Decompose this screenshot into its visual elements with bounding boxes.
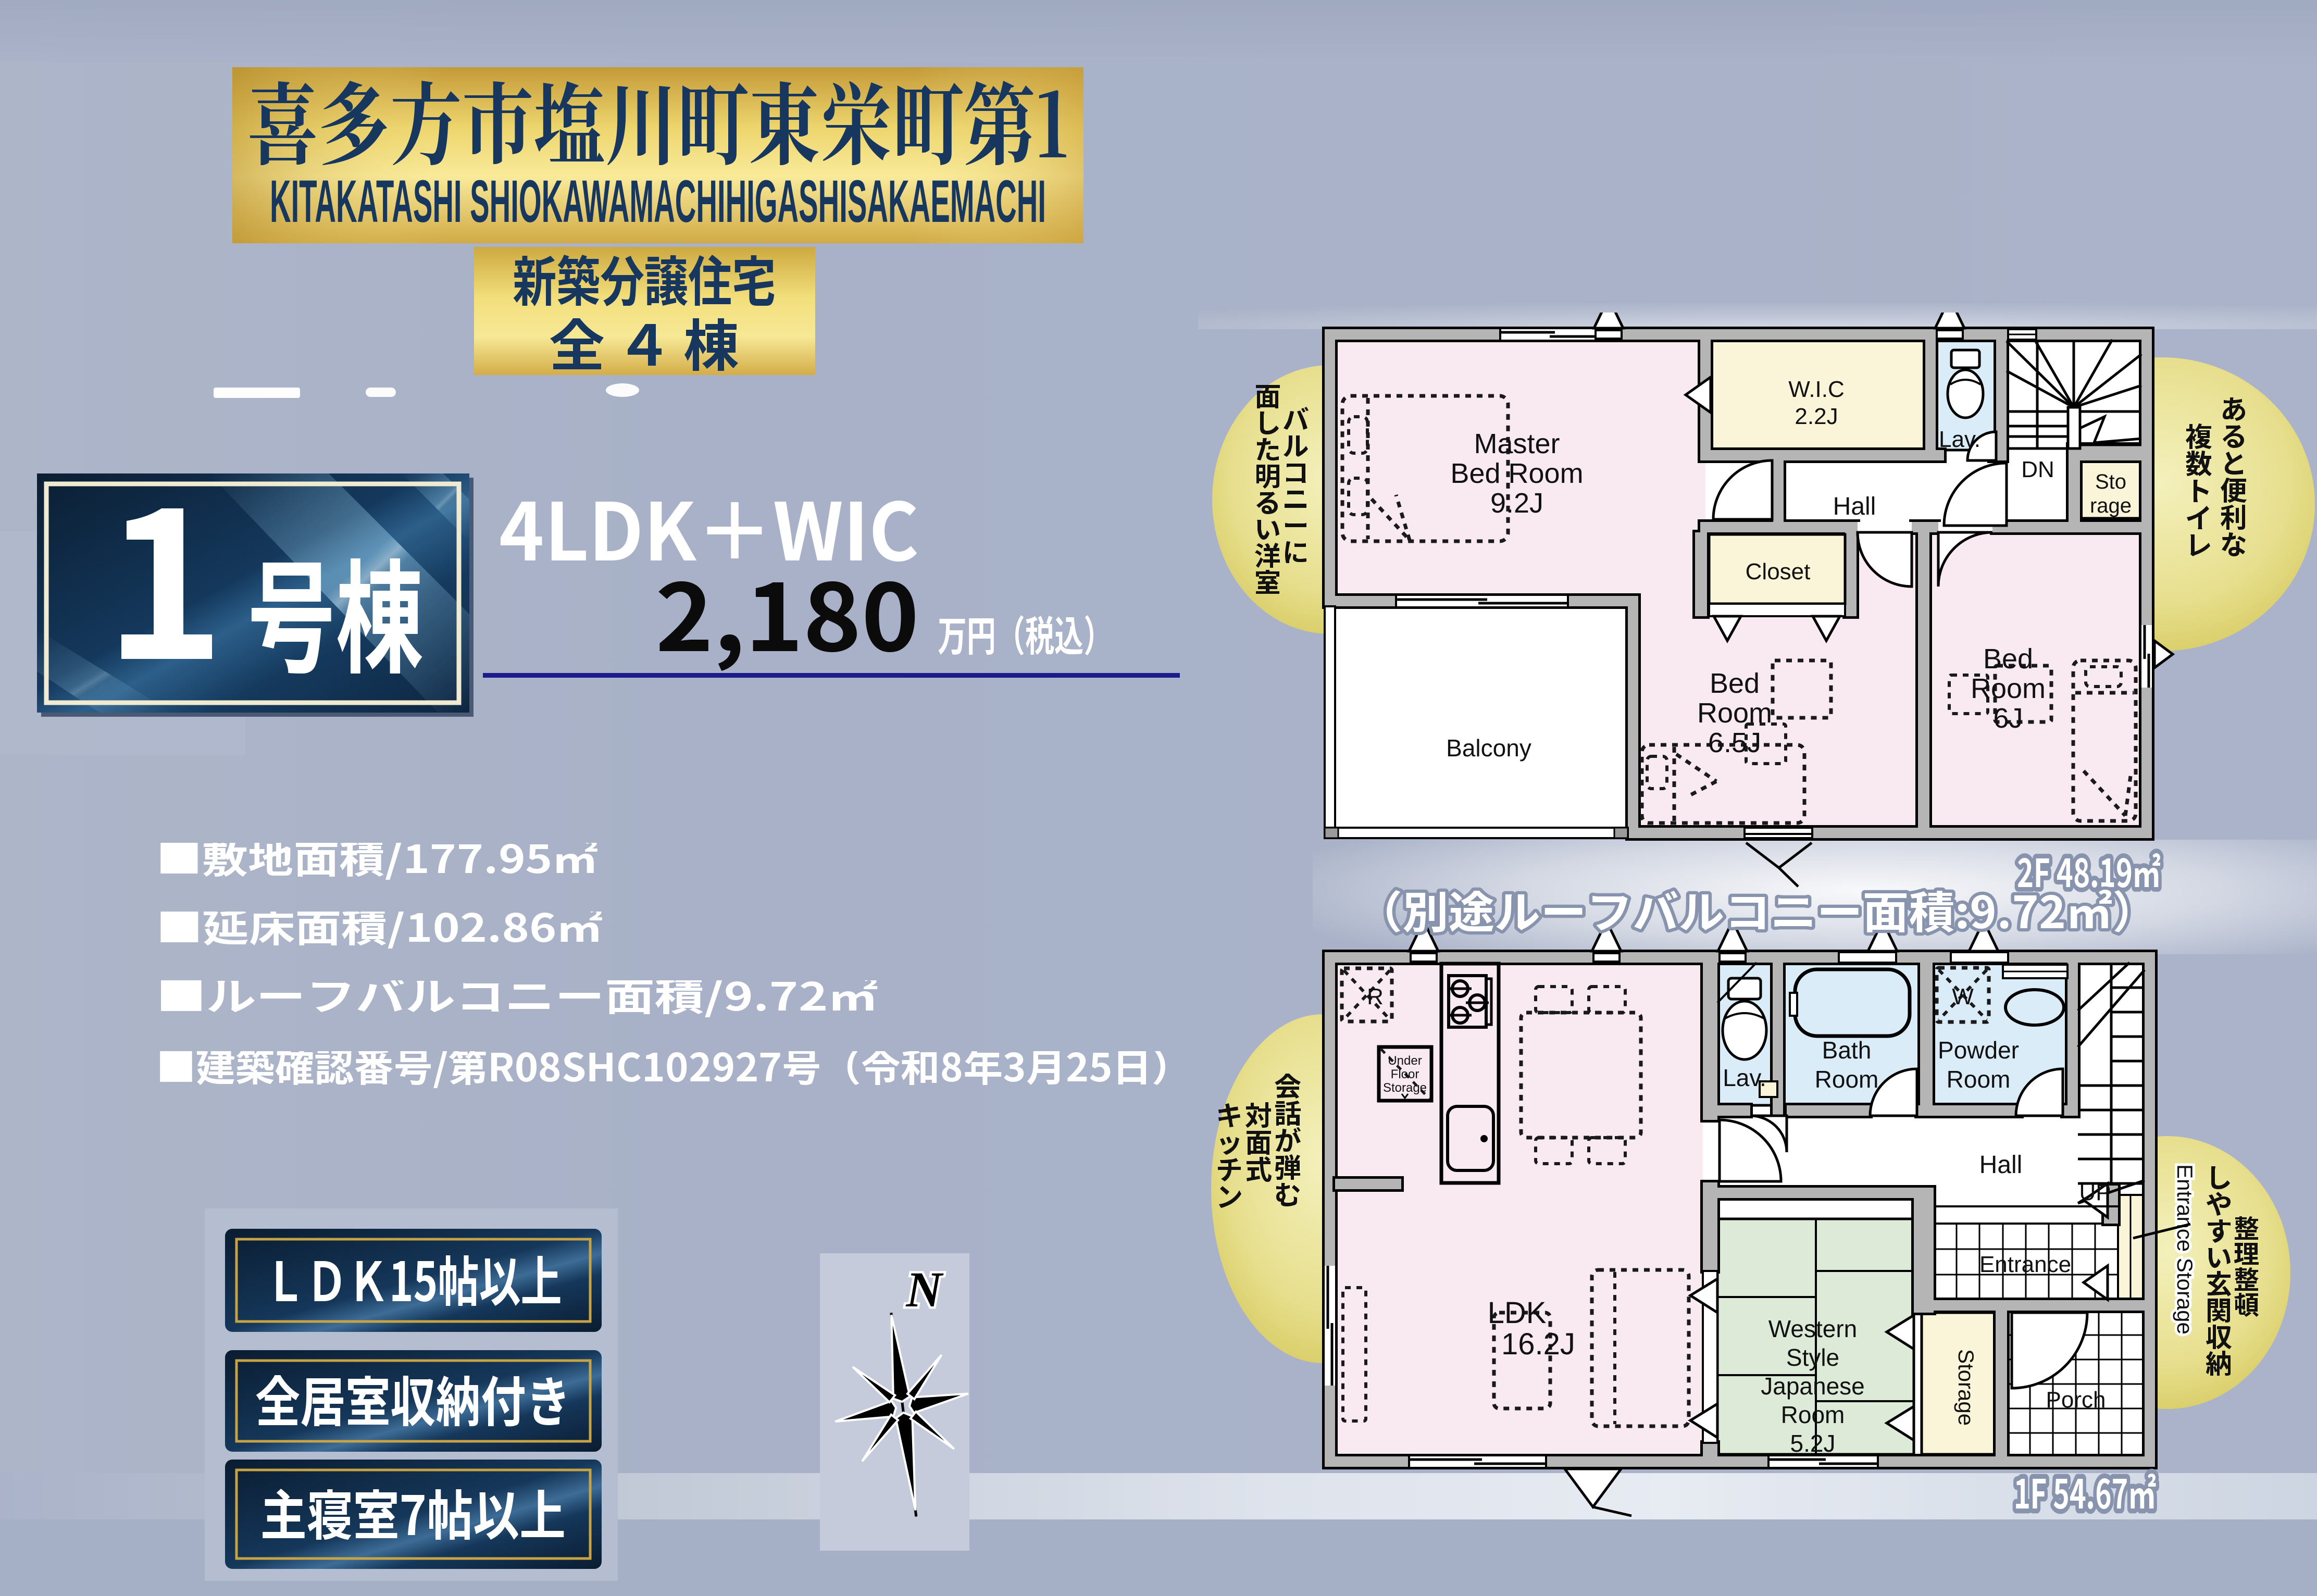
svg-text:N: N (905, 1262, 944, 1317)
svg-text:Master: Master (1474, 428, 1560, 459)
svg-text:6J: 6J (1993, 703, 2023, 734)
svg-text:Hall: Hall (1833, 493, 1876, 520)
svg-text:Room: Room (1971, 673, 2046, 704)
svg-text:Bed Room: Bed Room (1450, 458, 1583, 489)
svg-text:Bed: Bed (1983, 643, 2033, 675)
svg-text:9.2J: 9.2J (1490, 488, 1543, 519)
svg-text:Sto: Sto (2095, 470, 2126, 493)
svg-text:W.I.C: W.I.C (1788, 377, 1845, 402)
svg-text:6.5J: 6.5J (1708, 727, 1761, 758)
svg-text:KITAKATASHI SHIOKAWAMACHIHIGAS: KITAKATASHI SHIOKAWAMACHIHIGASHISAKAEMAC… (270, 168, 1046, 235)
svg-text:DN: DN (2021, 457, 2054, 482)
svg-text:Balcony: Balcony (1446, 734, 1531, 762)
svg-text:Bed: Bed (1710, 668, 1760, 699)
svg-text:Closet: Closet (1746, 559, 1811, 584)
svg-text:Lav.: Lav. (1939, 427, 1980, 452)
svg-text:Room: Room (1697, 697, 1772, 729)
svg-text:2.2J: 2.2J (1795, 404, 1838, 429)
svg-text:rage: rage (2090, 494, 2132, 517)
